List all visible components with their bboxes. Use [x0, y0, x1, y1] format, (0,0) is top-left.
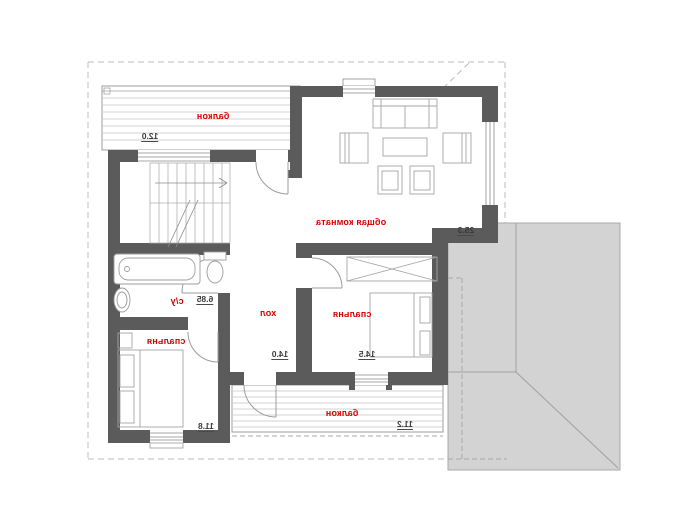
bedroom-right-window: [355, 372, 388, 385]
room-area-balcony-top: 12.0: [142, 132, 159, 142]
room-label-balcony-top: балкон: [197, 111, 230, 121]
room-label-living: общая комната: [316, 217, 386, 227]
floor-plan-page: балкон 12.0 общая комната 25.3 с/у 6.85 …: [0, 0, 700, 525]
room-area-hall: 14.0: [272, 350, 289, 360]
room-area-bedroom-bottom: 11.8: [198, 422, 214, 432]
bedroom-bottom-window: [150, 430, 183, 448]
room-label-wc: с/у: [170, 296, 183, 306]
room-label-hall: хол: [260, 308, 276, 318]
stair-balcony-window: [138, 150, 210, 162]
room-label-balcony-bottom: балкон: [326, 408, 359, 418]
sink-icon: [114, 288, 130, 312]
room-label-bedroom-bottom: спальня: [147, 336, 186, 346]
staircase: [150, 163, 230, 247]
lower-roof-area: [448, 223, 620, 470]
floor-plan-drawing: [0, 0, 700, 525]
room-area-bedroom-right: 14.5: [359, 350, 376, 360]
room-label-bedroom-right: спальня: [333, 309, 372, 319]
living-east-window: [482, 122, 498, 205]
room-area-wc: 6.85: [197, 295, 214, 305]
bathtub-icon: [114, 254, 200, 284]
room-area-living: 25.3: [458, 226, 475, 236]
living-north-window: [343, 79, 375, 97]
room-area-balcony-bottom: 11.2: [397, 420, 413, 430]
